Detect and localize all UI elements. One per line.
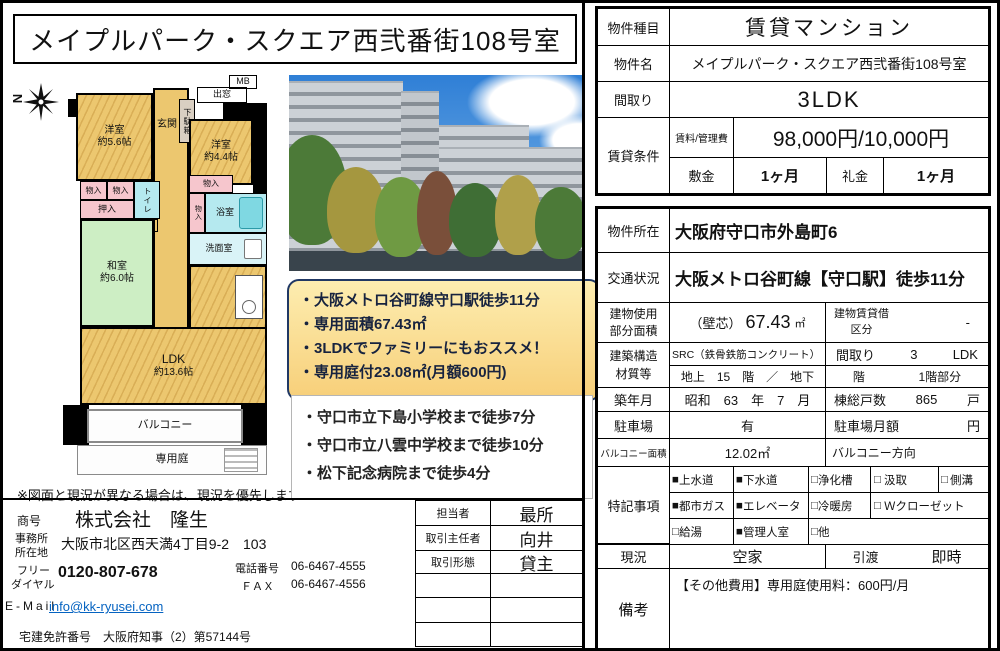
highlight-item: ・専用庭付23.08㎡(月額600円) [299,361,589,385]
wall-block [63,405,89,445]
chief-label-cell: 取引主任者 [415,525,491,551]
kitchen-sink [235,275,263,319]
floor-plan: 玄関 下駄箱 出窓 MB 洋室 約5.6帖 洋室 約4.4帖 物入 物入 トイレ… [11,79,283,479]
remarks-value-cell: 【その他費用】専用庭使用料：600円/月 [669,568,989,650]
key-money-value-cell: 1ヶ月 [883,157,989,194]
type-label-cell: 物件種目 [597,8,670,46]
feature-gas-cell: ■都市ガス [669,492,734,519]
feature-sewer-cell: ■下水道 [733,466,809,493]
room-washitsu-60: 和室 約6.0帖 [80,219,154,327]
name-label-cell: 物件名 [597,45,670,82]
balcony: バルコニー [87,409,243,443]
empty-cell [490,622,583,647]
feature-wcloset-cell: □Ｗクローゼット [870,492,989,519]
status-label-cell: 現況 [597,544,670,569]
feature-vault-cell: □汲取 [870,466,939,493]
private-garden: 専用庭 [77,445,267,475]
tree [449,183,501,257]
structure-value-cell: SRC（鉄骨鉄筋コンクリート） [669,342,826,366]
nearby-box: ・守口市立下島小学校まで徒歩7分 ・守口市立八雲中学校まで徒歩10分 ・松下記念… [291,395,593,499]
sink-bowl [242,300,256,314]
area-label-cell: 建物使用部分面積 [597,302,670,343]
wall-block [241,405,267,445]
empty-cell [415,573,491,598]
summary-table: 物件種目 賃貸マンション 物件名 メイプルパーク・スクエア西弐番街108号室 間… [595,6,991,196]
empty-cell [490,597,583,623]
rent-value-cell: 98,000円/10,000円 [733,117,989,158]
layout-value-cell: 3LDK [669,81,989,118]
features-label-cell: 特記事項 [597,466,670,544]
license-label: 宅建免許番号 [19,628,91,645]
empty-cell [415,622,491,647]
name-value-cell: メイプルパーク・スクエア西弐番街108号室 [669,45,989,82]
feature-aircon-cell: □冷暖房 [808,492,871,519]
area-value-cell: （壁芯） 67.43 ㎡ [669,302,826,343]
tree [535,187,583,259]
building-photo [289,75,583,271]
property-sheet: メイプルパーク・スクエア西弐番街108号室 N 玄関 下駄箱 出窓 MB [0,0,1000,651]
washroom: 洗面室 [189,233,267,265]
room-genkan-label: 玄関 [157,115,177,130]
remarks-label-cell: 備考 [597,568,670,650]
room-yoshitsu-56: 洋室 約5.6帖 [76,93,153,181]
highlights-box: ・大阪メトロ谷町線守口駅徒歩11分 ・専用面積67.43㎡ ・3LDKでファミリ… [287,279,601,401]
feature-other-cell: □他 [808,518,989,545]
fax-number: 06-6467-4556 [291,577,366,591]
tel-number: 06-6467-4555 [291,559,366,573]
terms-label-cell: 賃貸条件 [597,117,670,194]
email-link[interactable]: info@kk-ryusei.com [49,599,163,614]
type-value-cell: 賃貸マンション [669,8,989,46]
feature-gutter-cell: □側溝 [938,466,989,493]
staff-label-cell: 担当者 [415,500,491,526]
lease-type-cell: 建物賃貸借区分 - [825,302,989,343]
license-number: 大阪府知事（2）第57144号 [103,628,251,645]
meter-box: MB [229,75,257,89]
floors-value-cell: 地上 15 階 ／ 地下 [669,365,826,388]
detail-table: 物件所在 大阪府守口市外島町6 交通状況 大阪メトロ谷町線【守口駅】徒歩11分 … [595,206,991,650]
status-value-cell: 空家 [669,544,826,569]
feature-elevator-cell: ■エレベータ [733,492,809,519]
freedial-number: 0120-807-678 [58,564,158,582]
office-label-line2: 所在地 [15,544,48,560]
staff-value-cell: 最所 [490,500,583,526]
closet-monoire: 物入 [107,181,134,200]
nearby-item: ・守口市立下島小学校まで徒歩7分 [302,404,582,432]
deal-type-label-cell: 取引形態 [415,550,491,574]
highlight-item: ・3LDKでファミリーにもおススメ！ [299,337,589,361]
demado: 出窓 [197,87,247,103]
page-title: メイプルパーク・スクエア西弐番街108号室 [29,21,561,58]
closet-monoire: 物入 [189,175,233,193]
company-name: 株式会社 隆生 [75,505,208,532]
nearby-item: ・松下記念病院まで徒歩4分 [302,460,582,488]
rent-label-cell: 賃料/管理費 [669,117,734,158]
handover-cell: 引渡 即時 [825,544,989,569]
fax-label: ＦＡＸ [241,578,274,594]
freedial-label-line2: ダイヤル [11,576,55,592]
key-money-label-cell: 礼金 [826,157,884,194]
access-label-cell: 交通状況 [597,252,670,303]
garden-steps [224,448,258,472]
nearby-item: ・守口市立八雲中学校まで徒歩10分 [302,432,582,460]
deposit-value-cell: 1ヶ月 [733,157,827,194]
toilet: トイレ [134,181,160,219]
total-units-cell: 棟総戸数 865 戸 [825,387,989,412]
feature-water-cell: ■上水道 [669,466,734,493]
built-value-cell: 昭和 63 年 7 月 [669,387,826,412]
layout-cell: 間取り 3 LDK [825,342,989,366]
bathtub [239,197,263,229]
highlight-item: ・専用面積67.43㎡ [299,313,589,337]
parking-value-cell: 有 [669,411,826,439]
company-info: 商号 株式会社 隆生 事務所 所在地 大阪市北区西天満4丁目9-2 103 フリ… [3,500,415,648]
tel-label: 電話番号 [235,560,279,576]
floor-position-cell: 階 1階部分 [825,365,989,388]
company-name-label: 商号 [17,512,41,529]
office-address: 大阪市北区西天満4丁目9-2 103 [61,534,266,554]
tree [495,175,541,255]
title-box: メイプルパーク・スクエア西弐番街108号室 [13,14,577,64]
bathroom: 浴室 [205,193,267,233]
empty-cell [490,573,583,598]
closet-oshiire: 押入 [80,200,134,219]
deposit-label-cell: 敷金 [669,157,734,194]
closet-monoire: 物入 [80,181,107,200]
parking-label-cell: 駐車場 [597,411,670,439]
deal-type-value-cell: 貸主 [490,550,583,574]
parking-fee-cell: 駐車場月額 円 [825,411,989,439]
layout-label-cell: 間取り [597,81,670,118]
structure-label-cell: 建築構造材質等 [597,342,670,388]
access-value-cell: 大阪メトロ谷町線【守口駅】徒歩11分 [669,252,989,303]
built-label-cell: 築年月 [597,387,670,412]
room-ldk: LDK 約13.6帖 [80,327,267,405]
balcony-area-label-cell: バルコニー面積 [597,438,670,467]
agent-table: 担当者 最所 取引主任者 向井 取引形態 貸主 [415,500,583,647]
feature-manager-cell: ■管理人室 [733,518,809,545]
empty-cell [415,597,491,623]
location-value-cell: 大阪府守口市外島町6 [669,208,989,253]
feature-septic-cell: □浄化槽 [808,466,871,493]
balcony-direction-cell: バルコニー方向 [825,438,989,467]
balcony-area-value-cell: 12.02㎡ [669,438,826,467]
location-label-cell: 物件所在 [597,208,670,253]
highlight-item: ・大阪メトロ谷町線守口駅徒歩11分 [299,289,589,313]
closet-monoire: 物入 [189,193,205,233]
chief-value-cell: 向井 [490,525,583,551]
feature-hotwater-cell: □給湯 [669,518,734,545]
washer [244,239,262,259]
